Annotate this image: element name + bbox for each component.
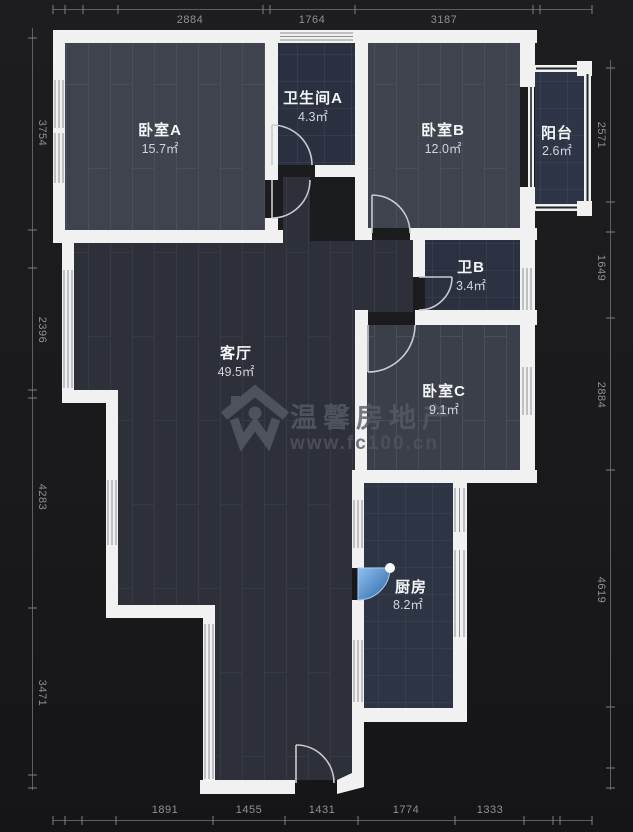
room-name-living: 客厅 <box>219 344 252 362</box>
dim-bottom-2: 1455 <box>236 804 262 816</box>
wall-bath-a-bottom-left <box>265 165 278 177</box>
dim-top-1: 2884 <box>177 14 203 26</box>
dim-right-4: 4619 <box>595 577 607 603</box>
dim-bottom-1: 1891 <box>152 804 178 816</box>
room-area-balcony: 2.6㎡ <box>542 144 572 158</box>
label-bedroom-a: 卧室A 15.7㎡ <box>138 121 182 156</box>
room-area-bath-a: 4.3㎡ <box>298 110 328 124</box>
room-area-bath-b: 3.4㎡ <box>456 279 486 293</box>
dim-right-3: 2884 <box>595 382 607 408</box>
wall-bedroom-c-left <box>355 312 367 483</box>
wall-bath-b-left-upper <box>413 240 425 277</box>
dim-right-1: 2571 <box>595 122 607 148</box>
wall-bedroom-b-bottom-right <box>410 228 537 240</box>
room-area-bedroom-b: 12.0㎡ <box>425 142 462 156</box>
wall-living-step-2 <box>106 605 215 618</box>
room-name-bedroom-c: 卧室C <box>422 382 466 400</box>
dim-top-2: 1764 <box>299 14 325 26</box>
door-handle-dot[interactable] <box>385 563 395 573</box>
label-balcony: 阳台 2.6㎡ <box>541 124 573 158</box>
wall-below-kitchen <box>352 722 364 778</box>
dim-left-3: 4283 <box>36 484 48 510</box>
room-name-bath-b: 卫B <box>457 259 485 276</box>
room-area-bedroom-c: 9.1㎡ <box>429 403 459 417</box>
wall-bedroom-b-right-upper <box>520 30 535 87</box>
room-name-bedroom-b: 卧室B <box>421 121 465 139</box>
wall-bedroom-a-right-lower <box>265 218 278 232</box>
label-living: 客厅 49.5㎡ <box>218 344 255 379</box>
dim-bottom-5: 1333 <box>477 804 503 816</box>
floorplan-svg: 2884 1764 3187 1891 1455 1431 1774 1333 … <box>0 0 633 832</box>
wall-bedroom-a-bottom <box>53 230 283 243</box>
dim-left-4: 3471 <box>36 680 48 706</box>
wall-bath-a-right <box>355 30 368 240</box>
dim-left-2: 2396 <box>36 317 48 343</box>
label-kitchen: 厨房 8.2㎡ <box>393 578 427 612</box>
balcony-post-bottom <box>577 201 592 216</box>
room-name-balcony: 阳台 <box>541 124 573 142</box>
label-bedroom-b: 卧室B 12.0㎡ <box>421 121 465 156</box>
dim-bottom-3: 1431 <box>309 804 335 816</box>
wall-bedroom-b-bottom-left <box>355 228 372 240</box>
dim-bottom-4: 1774 <box>393 804 419 816</box>
wall-bedroom-b-right-lower <box>520 187 535 240</box>
room-area-bedroom-a: 15.7㎡ <box>142 142 179 156</box>
dim-top-3: 3187 <box>431 14 457 26</box>
room-bath-b-texture <box>425 240 520 312</box>
duct-shaft <box>310 177 355 241</box>
room-name-kitchen: 厨房 <box>395 578 427 596</box>
wall-living-step-1 <box>62 390 118 403</box>
dim-right-2: 1649 <box>595 255 607 281</box>
room-name-bath-a: 卫生间A <box>283 89 343 107</box>
watermark-url: www.fc100.cn <box>289 433 439 454</box>
floorplan-canvas: 2884 1764 3187 1891 1455 1431 1774 1333 … <box>0 0 633 832</box>
wall-bedroom-c-top-right <box>415 310 537 325</box>
room-name-bedroom-a: 卧室A <box>138 121 182 139</box>
dim-left-1: 3754 <box>36 120 48 146</box>
room-area-living: 49.5㎡ <box>218 365 255 379</box>
room-area-kitchen: 8.2㎡ <box>393 598 423 612</box>
wall-kitchen-top <box>352 470 537 483</box>
wall-kitchen-bottom <box>352 708 467 722</box>
balcony-post-top <box>577 61 592 76</box>
